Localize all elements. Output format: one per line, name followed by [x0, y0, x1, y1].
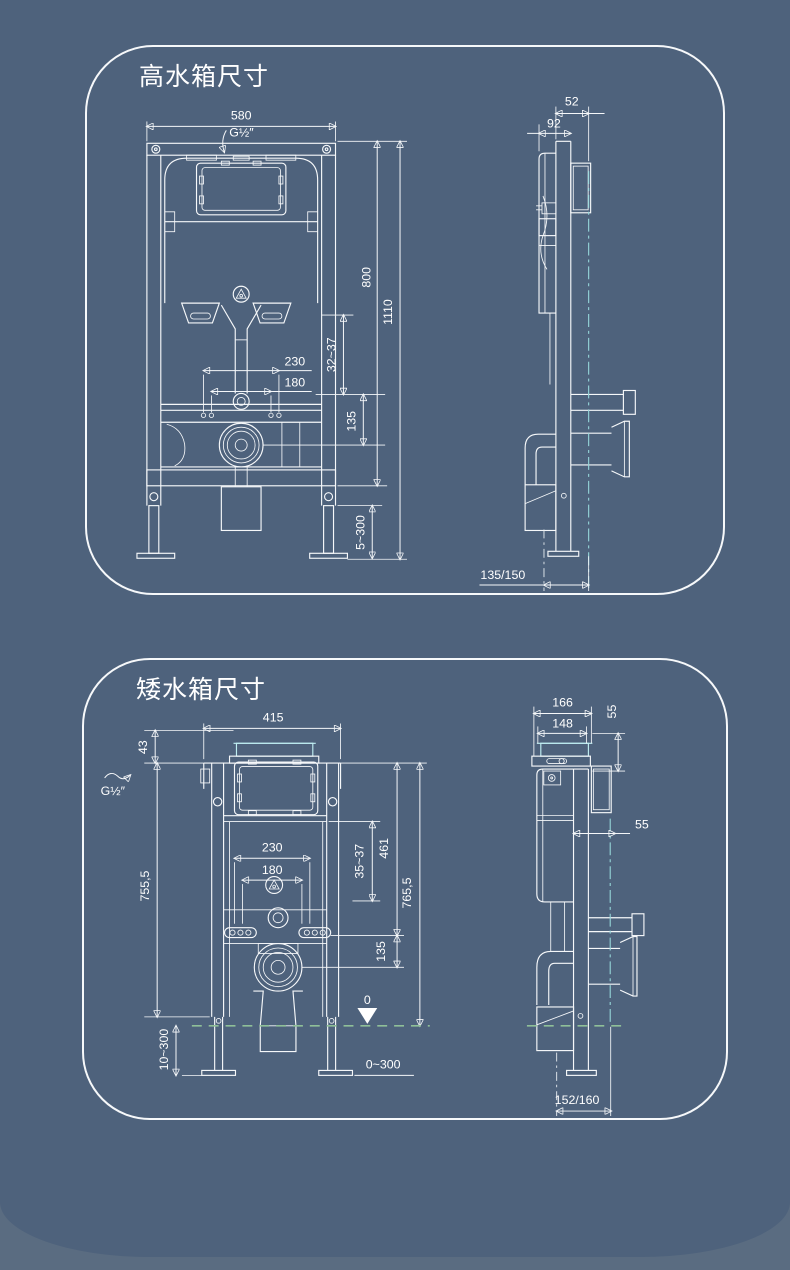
lt-front-tank	[224, 760, 331, 1051]
ht-side-dims: 52 92 135/150	[479, 95, 604, 591]
dim-wall-range: 32~37	[325, 337, 339, 372]
dim-bolt-outer: 230	[284, 355, 305, 369]
high-tank-drawing: 580 G½″ 32~37 135 800 1110 5	[87, 47, 723, 593]
dim-bolt-inner: 180	[262, 863, 283, 877]
dim-cap-height: 43	[136, 740, 150, 754]
dim-bolt-outer: 230	[262, 840, 283, 854]
dim-width-top: 415	[263, 710, 284, 724]
level-triangle	[357, 1008, 377, 1024]
dim-leg-adjust: 5~300	[353, 515, 367, 550]
dim-outlet-offset: 152/160	[555, 1093, 600, 1107]
ht-front-lower	[161, 404, 322, 530]
low-tank-drawing: 415 43 G½″ 755,5 10~300 230	[84, 660, 726, 1118]
dim-depth-plate: 52	[565, 95, 579, 109]
dim-total-height: 1110	[381, 299, 395, 325]
ht-front-tank	[165, 155, 318, 409]
dim-frame-height: 800	[359, 267, 373, 288]
dim-depth-total: 166	[552, 696, 573, 710]
dim-wall-offset: 55	[635, 818, 649, 832]
ht-side-body	[525, 141, 635, 556]
high-tank-panel: 高水箱尺寸	[85, 45, 725, 595]
inlet-label: G½″	[101, 784, 126, 798]
dim-cap-depth: 55	[605, 705, 619, 719]
dim-inner-height: 461	[377, 838, 391, 859]
dim-outlet-height: 135	[344, 411, 358, 432]
dim-depth-body: 92	[547, 116, 561, 130]
dim-wall-range: 35~37	[352, 844, 366, 879]
dim-bolt-inner: 180	[284, 376, 305, 390]
dim-floor-range: 0~300	[366, 1057, 401, 1071]
dim-outlet-height: 135	[374, 941, 388, 962]
dim-leg-adjust: 10~300	[157, 1029, 171, 1071]
ht-front-frame	[137, 143, 347, 558]
low-tank-panel: 矮水箱尺寸	[82, 658, 728, 1120]
lt-front-dims: 415 43 G½″ 755,5 10~300 230	[101, 710, 427, 1075]
dim-total-height: 765,5	[400, 877, 414, 908]
dim-left-height: 755,5	[138, 870, 152, 901]
level-zero: 0	[364, 993, 371, 1007]
lt-front-cap	[230, 743, 319, 763]
dim-outlet-offset: 135/150	[480, 568, 525, 582]
ht-front-dims: 580 G½″ 32~37 135 800 1110 5	[147, 108, 407, 559]
content-card: 高水箱尺寸	[0, 0, 790, 1257]
dim-depth-body: 148	[552, 716, 573, 730]
inlet-label: G½″	[229, 125, 254, 139]
dim-width-top: 580	[231, 108, 252, 122]
